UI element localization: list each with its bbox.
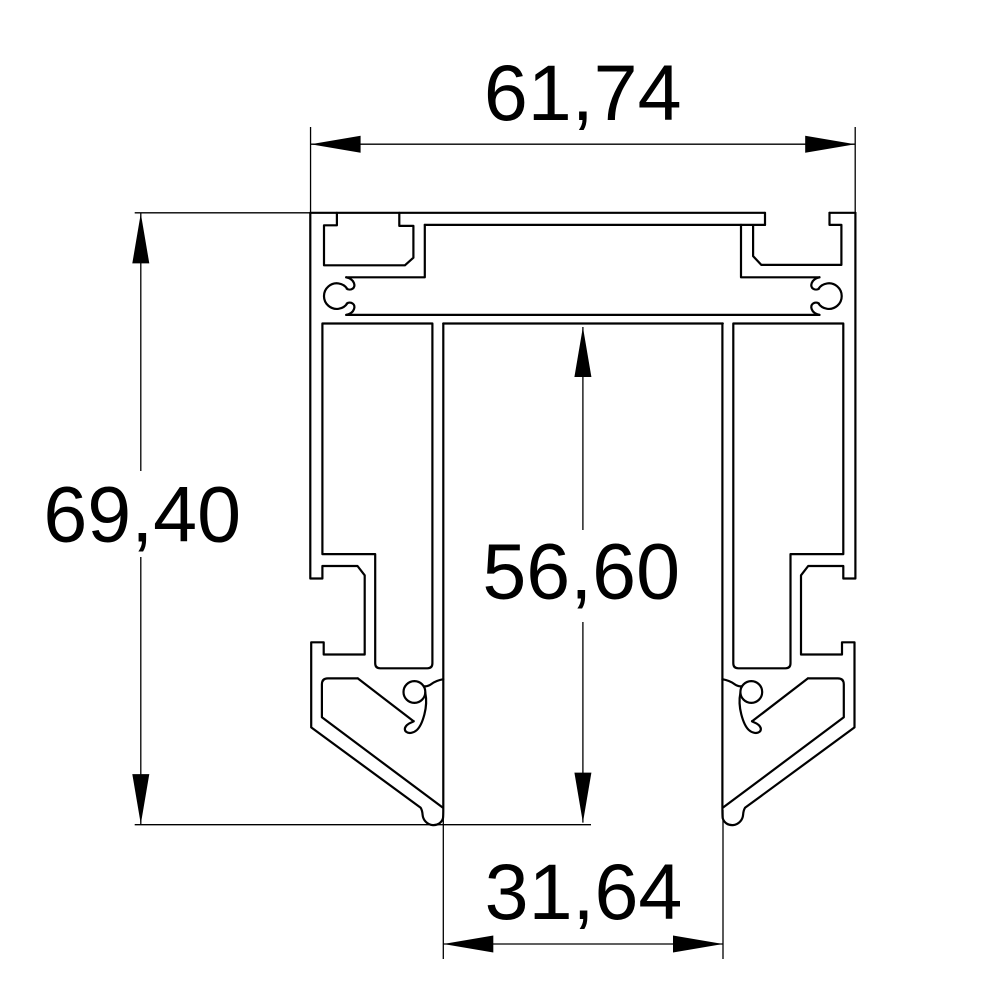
svg-text:31,64: 31,64 bbox=[485, 847, 683, 936]
svg-text:56,60: 56,60 bbox=[482, 527, 680, 616]
svg-text:61,74: 61,74 bbox=[484, 48, 682, 137]
svg-text:69,40: 69,40 bbox=[43, 469, 241, 558]
